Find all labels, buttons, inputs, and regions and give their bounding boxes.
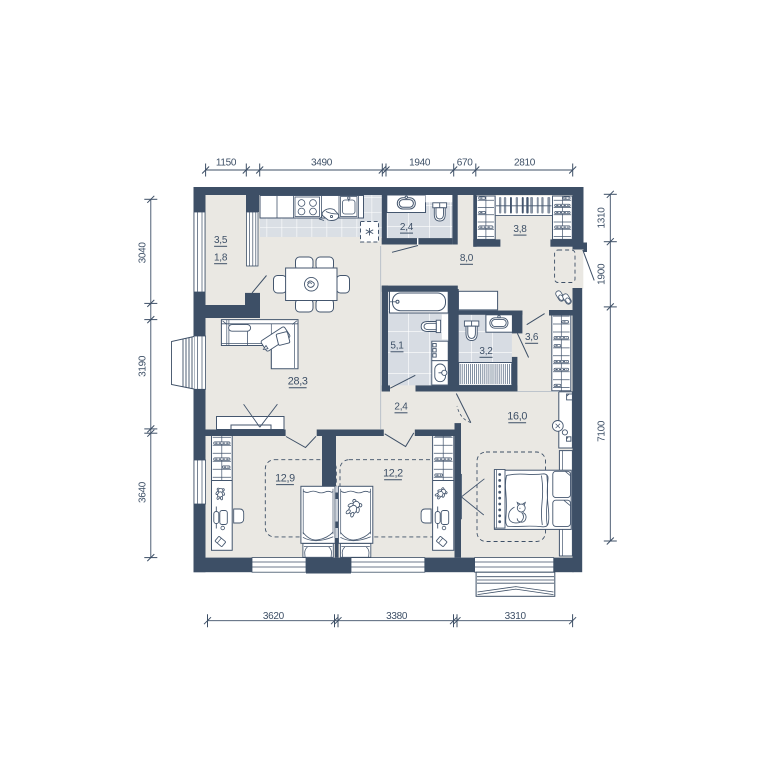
svg-text:2,4: 2,4 [394, 402, 408, 413]
svg-text:5,1: 5,1 [390, 341, 404, 352]
svg-text:1,8: 1,8 [214, 252, 228, 263]
svg-text:1940: 1940 [409, 158, 431, 169]
svg-text:8,0: 8,0 [460, 253, 474, 264]
svg-text:7100: 7100 [597, 420, 608, 442]
svg-text:28,3: 28,3 [288, 376, 308, 388]
svg-text:3,8: 3,8 [513, 224, 527, 235]
svg-text:3490: 3490 [311, 158, 333, 169]
svg-text:2810: 2810 [514, 158, 536, 169]
svg-text:1150: 1150 [216, 158, 237, 169]
svg-text:3620: 3620 [263, 611, 285, 622]
svg-text:3,5: 3,5 [214, 235, 228, 246]
svg-text:3,6: 3,6 [525, 332, 539, 343]
svg-text:3,2: 3,2 [479, 346, 493, 357]
svg-text:670: 670 [457, 158, 474, 169]
svg-text:3040: 3040 [138, 242, 149, 264]
svg-text:12,2: 12,2 [383, 468, 403, 480]
svg-text:1310: 1310 [597, 207, 608, 229]
svg-text:2,4: 2,4 [400, 222, 414, 233]
svg-text:3380: 3380 [386, 611, 408, 622]
svg-text:3640: 3640 [138, 481, 149, 503]
svg-text:16,0: 16,0 [507, 411, 527, 423]
svg-text:3190: 3190 [138, 355, 149, 377]
svg-text:1900: 1900 [597, 263, 608, 285]
svg-text:12,9: 12,9 [275, 472, 295, 484]
svg-text:3310: 3310 [505, 611, 527, 622]
